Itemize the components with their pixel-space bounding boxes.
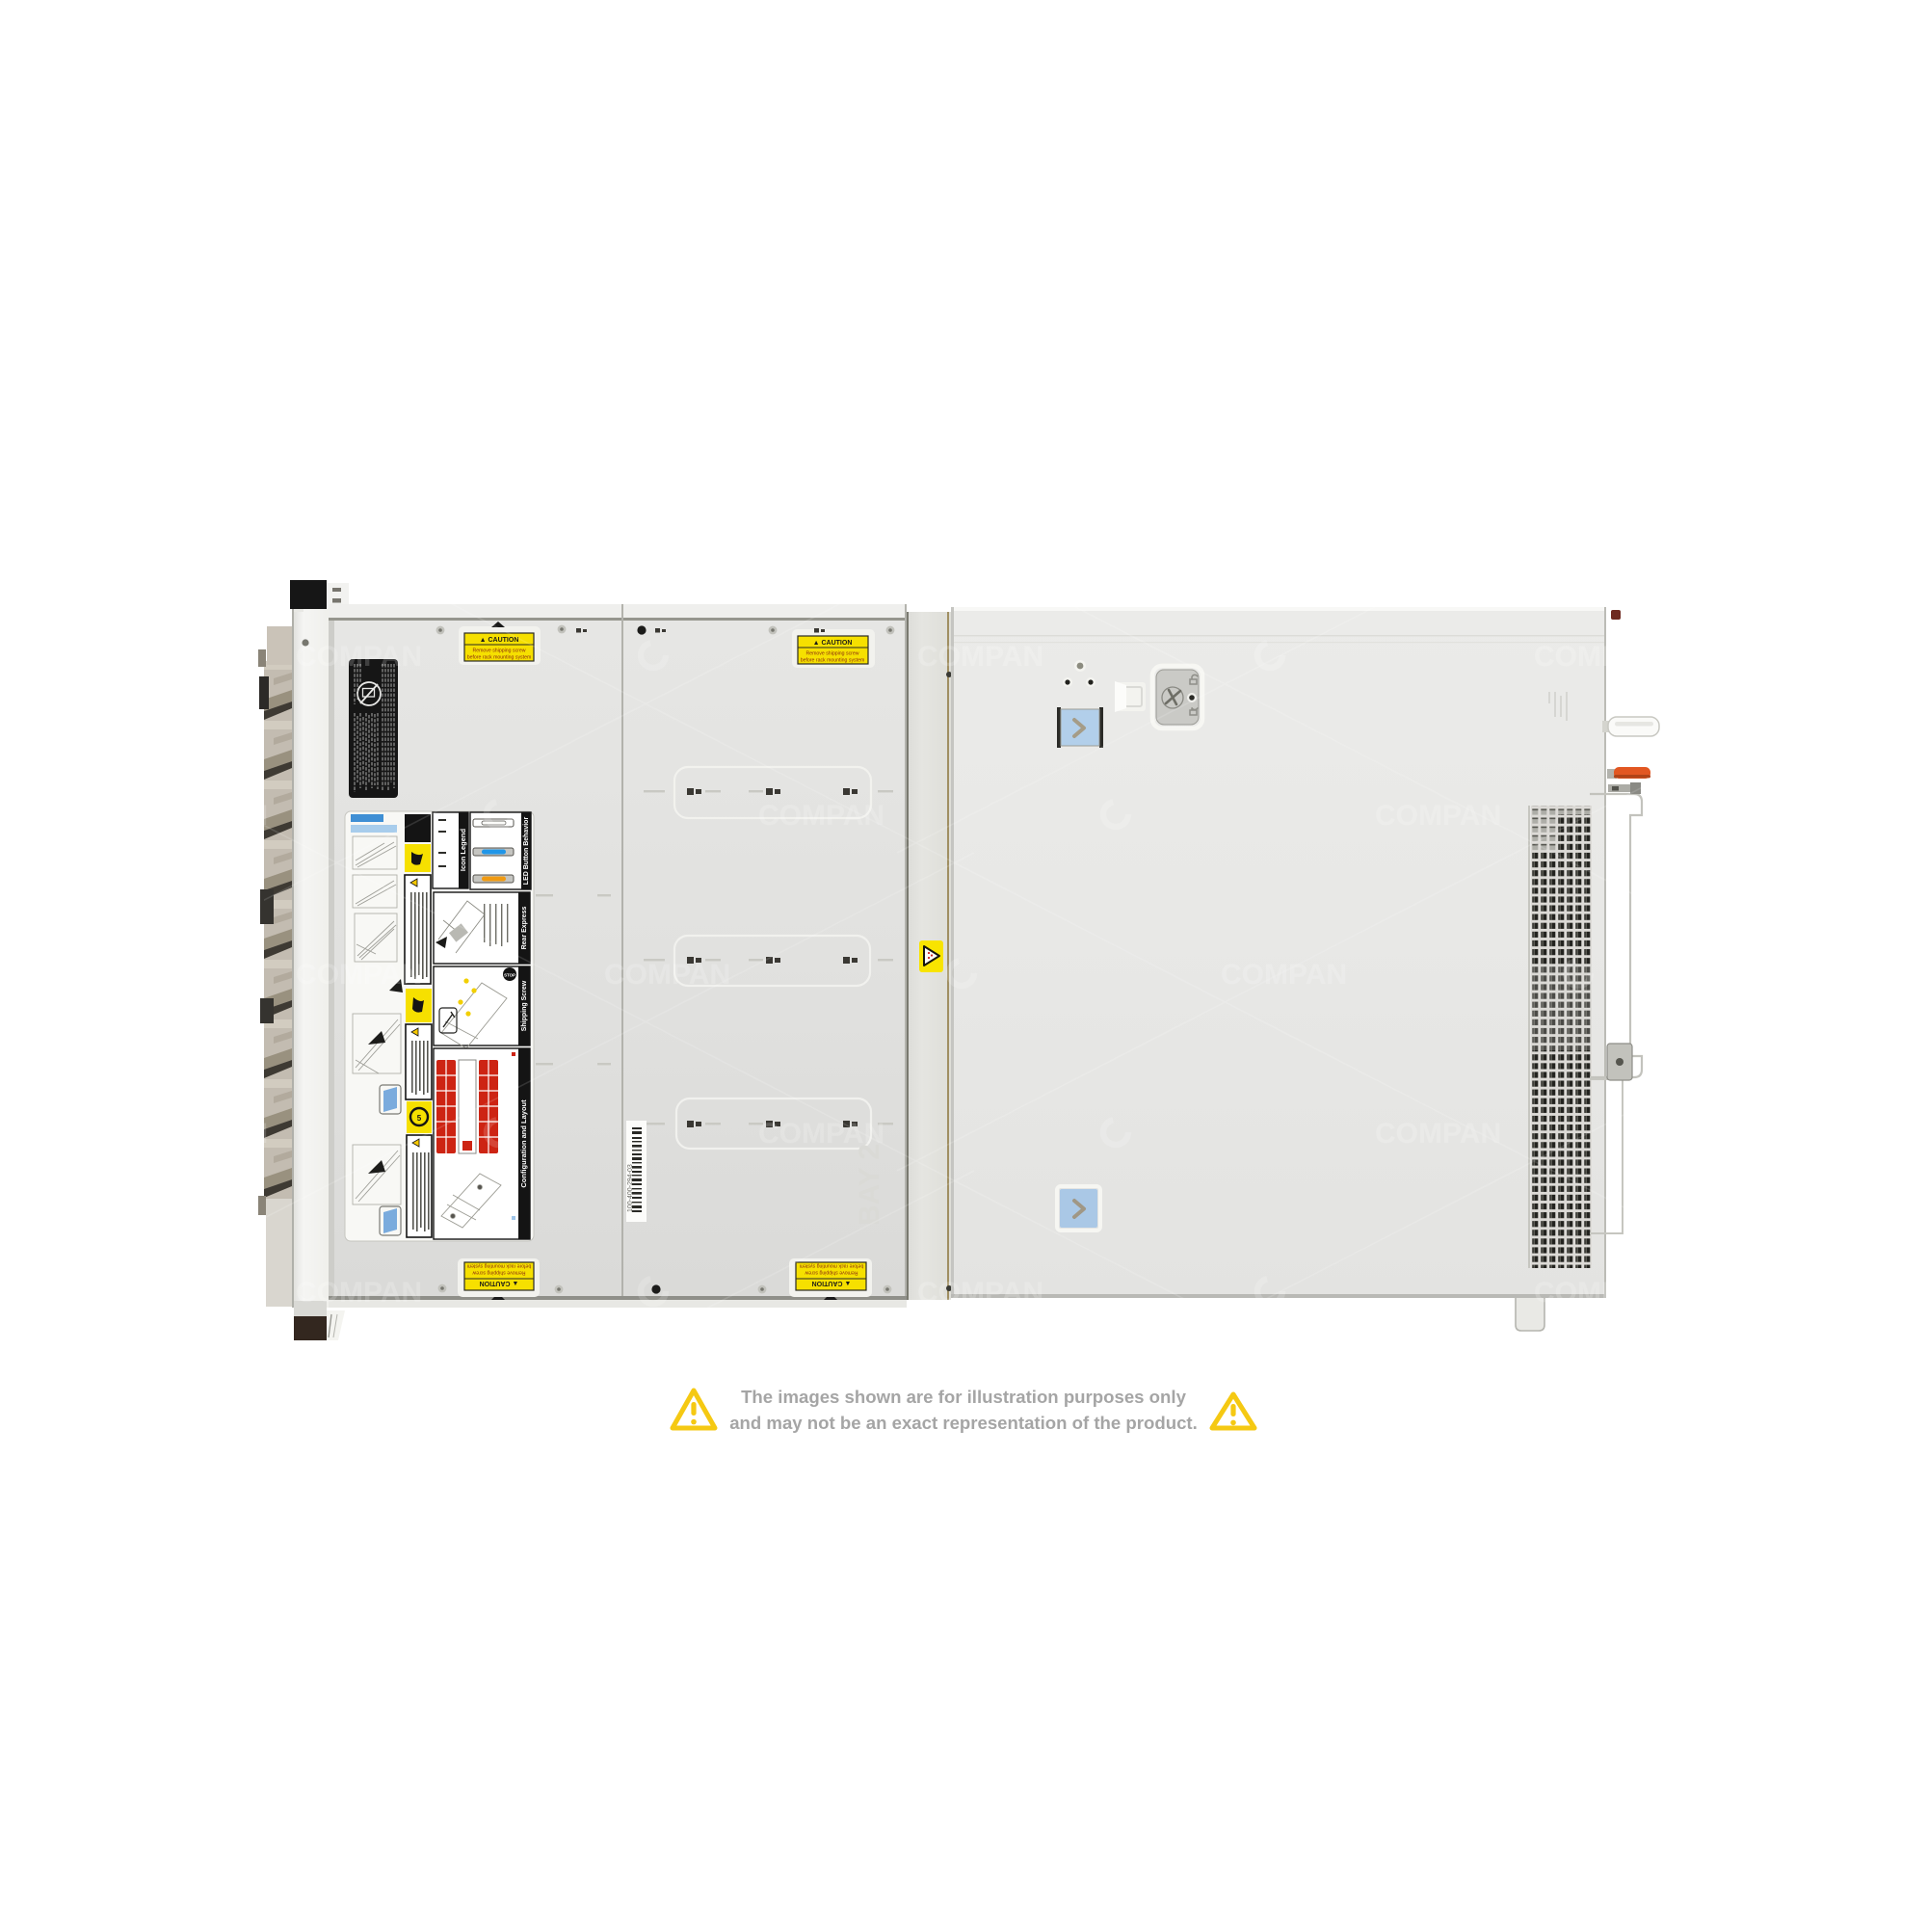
- svg-text:▲ CAUTION: ▲ CAUTION: [812, 1280, 852, 1286]
- svg-text:and may not be an exact repres: and may not be an exact representation o…: [729, 1413, 1198, 1433]
- svg-text:Configuration and Layout: Configuration and Layout: [519, 1099, 528, 1188]
- svg-text:before rack mounting system: before rack mounting system: [467, 1263, 532, 1269]
- svg-text:Shipping Screw: Shipping Screw: [521, 980, 528, 1031]
- svg-text:Remove shipping screw: Remove shipping screw: [805, 651, 858, 657]
- svg-text:BAY 2: BAY 2: [854, 1144, 885, 1226]
- svg-text:Rear Express: Rear Express: [521, 907, 528, 950]
- svg-text:COMPAN: COMPAN: [1375, 1118, 1501, 1150]
- svg-text:LED Button Behavior: LED Button Behavior: [523, 817, 530, 886]
- svg-text:Icon Legend: Icon Legend: [459, 828, 467, 871]
- svg-text:COMPAN: COMPAN: [1534, 1277, 1660, 1309]
- svg-text:Remove shipping screw: Remove shipping screw: [472, 648, 525, 654]
- svg-text:COMPAN: COMPAN: [758, 800, 884, 832]
- svg-text:COMPAN: COMPAN: [296, 641, 422, 673]
- svg-text:The images shown are for illus: The images shown are for illustration pu…: [741, 1387, 1186, 1407]
- svg-text:5: 5: [417, 1114, 422, 1123]
- svg-text:COMPAN: COMPAN: [1534, 641, 1660, 673]
- svg-text:COMPAN: COMPAN: [1375, 800, 1501, 832]
- svg-text:COMPAN: COMPAN: [917, 1277, 1043, 1309]
- svg-text:before rack mounting system: before rack mounting system: [800, 1263, 864, 1269]
- svg-text:100-400-294-03: 100-400-294-03: [627, 1164, 634, 1212]
- svg-text:before rack mounting system: before rack mounting system: [467, 655, 532, 661]
- svg-text:▲ CAUTION: ▲ CAUTION: [813, 640, 853, 647]
- svg-text:COMPAN: COMPAN: [1221, 959, 1347, 991]
- svg-text:COMPAN: COMPAN: [917, 641, 1043, 673]
- svg-text:▲ CAUTION: ▲ CAUTION: [480, 1280, 519, 1286]
- svg-text:before rack mounting system: before rack mounting system: [801, 658, 865, 664]
- svg-text:COMPAN: COMPAN: [296, 1277, 422, 1309]
- svg-text:Remove shipping screw: Remove shipping screw: [472, 1270, 525, 1276]
- svg-text:STOP: STOP: [504, 973, 515, 978]
- svg-text:COMPAN: COMPAN: [758, 1118, 884, 1150]
- svg-text:▲ CAUTION: ▲ CAUTION: [480, 637, 519, 644]
- svg-text:COMPAN: COMPAN: [296, 959, 422, 991]
- svg-text:Remove shipping screw: Remove shipping screw: [805, 1270, 858, 1276]
- svg-text:COMPAN: COMPAN: [604, 959, 730, 991]
